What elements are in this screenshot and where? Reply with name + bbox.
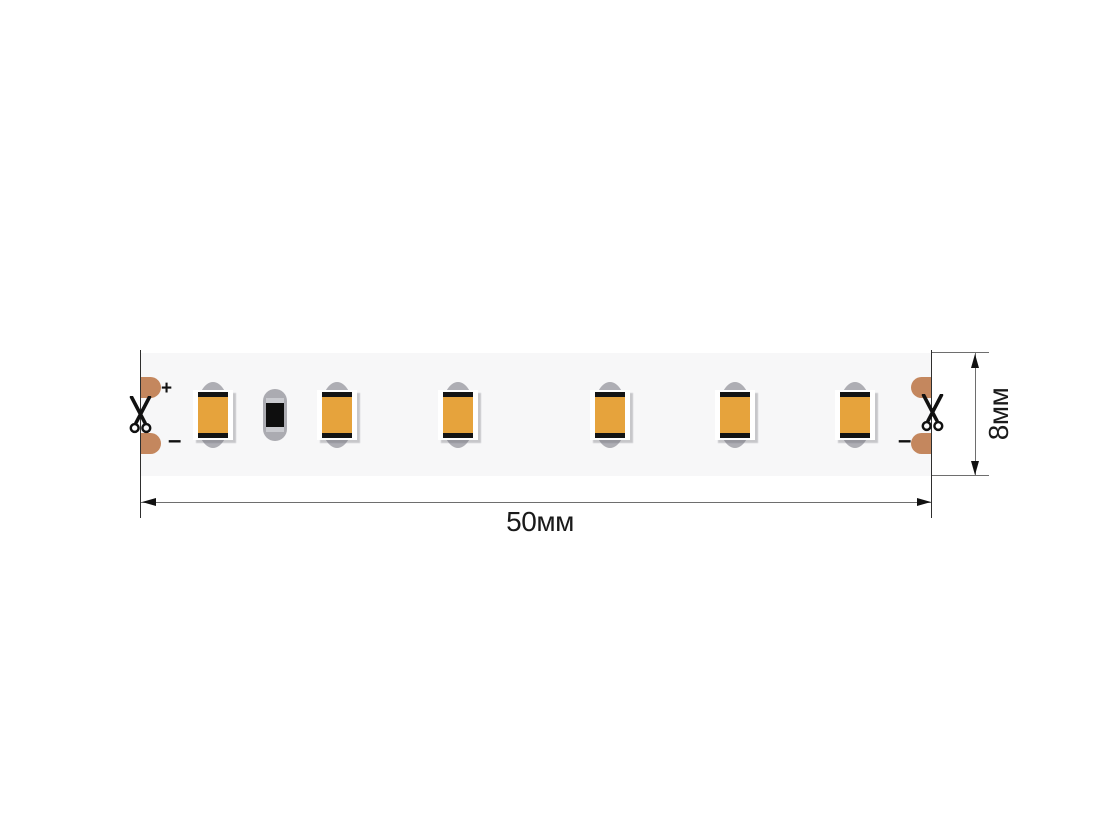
led-electrode-bottom [840, 433, 870, 438]
scissors-icon-right [919, 394, 946, 432]
cut-line-right [931, 350, 932, 518]
led-chip [322, 397, 352, 433]
height-dimension-label: 8мм [983, 388, 1015, 441]
led-chip [840, 397, 870, 433]
scissors-icon-left [127, 396, 154, 434]
height-extension-bottom [932, 475, 989, 476]
resistor-element [266, 403, 284, 427]
resistor-terminal-bottom [266, 427, 284, 432]
led-chip [443, 397, 473, 433]
smd-led-4 [590, 382, 630, 448]
height-extension-top [932, 352, 989, 353]
led-chip [720, 397, 750, 433]
smd-led-1 [193, 382, 233, 448]
minus-label-left: – [168, 429, 181, 453]
smd-resistor [263, 389, 287, 441]
led-chip [198, 397, 228, 433]
copper-pad-right-bottom [911, 433, 931, 454]
led-strip-drawing: + – – 50мм 8мм [0, 0, 1120, 840]
height-arrow-bottom [971, 461, 979, 475]
copper-pad-left-bottom [141, 433, 161, 454]
smd-led-2 [317, 382, 357, 448]
led-electrode-bottom [443, 433, 473, 438]
led-strip-body [141, 353, 931, 476]
height-arrow-top [971, 354, 979, 368]
led-electrode-bottom [198, 433, 228, 438]
width-arrow-left [142, 498, 156, 506]
copper-pad-left-top [141, 377, 161, 398]
width-dimension-label: 50мм [506, 506, 574, 538]
smd-led-5 [715, 382, 755, 448]
width-dimension-line [141, 502, 931, 503]
led-electrode-bottom [595, 433, 625, 438]
height-dimension-line [975, 353, 976, 476]
led-electrode-bottom [322, 433, 352, 438]
plus-label-left: + [161, 379, 172, 398]
led-electrode-bottom [720, 433, 750, 438]
smd-led-6 [835, 382, 875, 448]
width-arrow-right [917, 498, 931, 506]
led-chip [595, 397, 625, 433]
smd-led-3 [438, 382, 478, 448]
minus-label-right: – [898, 429, 911, 453]
